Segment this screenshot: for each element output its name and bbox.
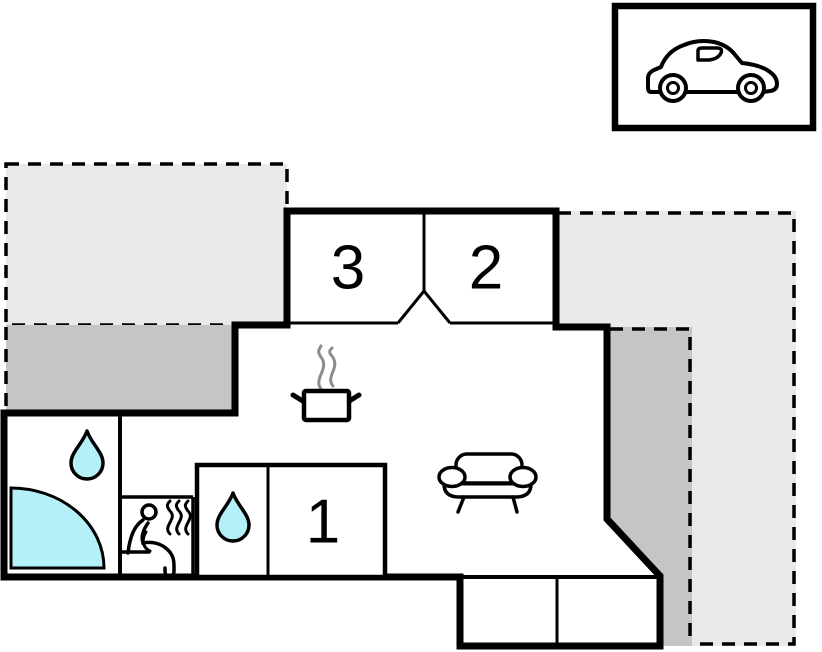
bedroom-3-label: 3 (331, 234, 365, 303)
terrace-top-left (6, 164, 287, 325)
bedroom-1-label: 1 (306, 488, 340, 557)
bedroom-2-label: 2 (469, 234, 503, 303)
car-window (698, 48, 722, 60)
covered-terrace-left (6, 325, 235, 413)
floor-plan-canvas: 3 2 1 (0, 0, 822, 652)
floor-plan: 3 2 1 (0, 0, 822, 652)
